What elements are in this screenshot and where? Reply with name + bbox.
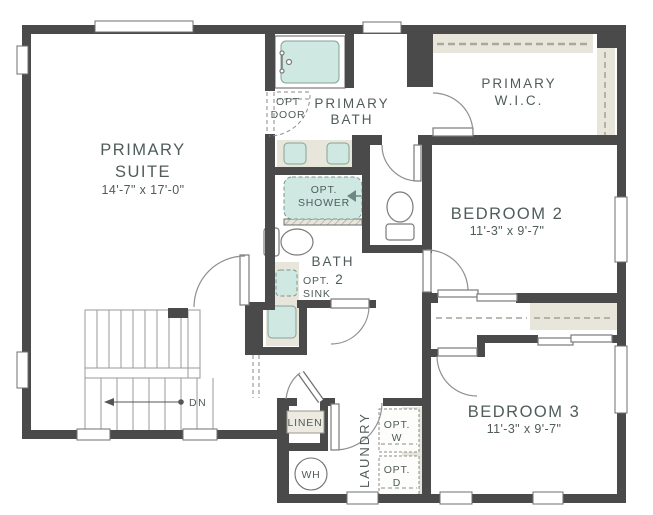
floor-plan: PRIMARY SUITE 14'-7" x 17'-0" PRIMARY BA… [0, 0, 653, 515]
room-label-bedroom3: BEDROOM 3 [468, 403, 581, 421]
room-label-primary-suite: PRIMARY [100, 141, 185, 159]
down-arrow [104, 398, 184, 406]
room-dims-bedroom2: 11'-3" x 9'-7" [470, 224, 545, 238]
window [17, 46, 28, 74]
door-leaf-laundry [331, 404, 339, 450]
opt-sink-icon [276, 270, 297, 296]
wall-vanity-bottom [245, 347, 307, 355]
wall-laundry-top [383, 398, 422, 406]
window [77, 429, 110, 440]
wall-linen-bottom [289, 443, 328, 451]
opt-sink-label: SINK [303, 288, 331, 300]
stairs-down-label: DN [189, 397, 207, 409]
toilet-bowl [387, 192, 413, 222]
wall-vanity-right [299, 300, 307, 355]
opt-washer-label: W [392, 432, 403, 444]
bathtub-spout [287, 60, 292, 65]
opt-shower-label: SHOWER [298, 197, 350, 209]
room-label-bath2: BATH [311, 254, 354, 269]
room-dims-primary-suite: 14'-7" x 17'-0" [102, 183, 185, 197]
opt-washer-label: OPT. [384, 419, 411, 431]
room-label-bedroom2: BEDROOM 2 [451, 205, 564, 223]
doors [194, 93, 612, 450]
window [363, 22, 401, 33]
door-leaf-bath2 [331, 299, 369, 308]
door-arc-wic [433, 93, 473, 133]
wic-right-shelf [597, 48, 615, 138]
wall-wc-left [362, 143, 370, 250]
wall-bed2-bottom-right [516, 293, 626, 303]
door-arc-bedroom3 [437, 356, 477, 396]
wall-closet-bottom-right [612, 335, 626, 343]
room-dims-bedroom3: 11'-3" x 9'-7" [487, 422, 562, 436]
window [533, 492, 563, 504]
wall-bed3-laundry [422, 292, 431, 503]
sink-icon [327, 143, 349, 164]
bathtub-handle-top [280, 51, 284, 55]
door-arc-primary-suite [194, 256, 245, 307]
stair-upper-flight [85, 310, 188, 368]
window [17, 352, 28, 388]
door-leaf-wic [433, 128, 473, 136]
toilet-tank [386, 224, 414, 240]
bypass-door-bed3-closet [571, 335, 612, 342]
wall-bed3-door-right [477, 349, 485, 357]
wall-suite-door [168, 308, 188, 318]
bypass-door-bed2-closet [477, 294, 517, 301]
room-label-primary-wic: PRIMARY [481, 76, 556, 91]
window [615, 346, 627, 413]
door-leaf-wc [414, 145, 421, 181]
window [347, 492, 378, 504]
window [615, 197, 627, 262]
door-arc-linen [286, 373, 300, 399]
stair-landing [85, 368, 200, 378]
room-label-bath2: 2 [335, 272, 345, 287]
water-heater-label: WH [301, 469, 320, 481]
wall-closet-bottom-left [477, 335, 538, 343]
wall-exterior-bottom-left [22, 430, 288, 439]
room-label-primary-suite: SUITE [115, 163, 171, 181]
door-arc-bath2 [331, 306, 369, 344]
opt-sink-label: OPT. [303, 275, 330, 287]
window [183, 429, 217, 440]
sink-icon [268, 306, 296, 338]
door-leaf-bedroom3 [438, 348, 477, 356]
dryer-icon [379, 456, 419, 496]
stair-upper-treads [97, 310, 181, 368]
wall-vanity-left [245, 305, 263, 352]
arrow-origin-dot [178, 399, 184, 405]
wall-bath-divider [275, 167, 362, 175]
arrowhead-icon [104, 398, 114, 406]
room-label-laundry: LAUNDRY [357, 412, 372, 488]
room-label-primary-wic: W.I.C. [495, 93, 544, 108]
opt-door-label: DOOR [271, 109, 306, 121]
wall-suite-bath-lower [265, 134, 275, 304]
wall-wic-pillar [407, 25, 433, 87]
floor-plan-drawing: PRIMARY SUITE 14'-7" x 17'-0" PRIMARY BA… [0, 0, 653, 515]
room-label-primary-bath: BATH [330, 112, 373, 127]
shower-curb [284, 219, 362, 225]
window [95, 21, 193, 32]
opt-dryer-label: OPT. [384, 464, 411, 476]
room-label-linen: LINEN [288, 417, 323, 429]
opt-dryer-label: D [393, 477, 401, 489]
wall-suite-bath-upper [265, 33, 275, 91]
toilet-bowl [281, 229, 313, 255]
opt-shower-label: OPT. [311, 184, 338, 196]
sink-icon [284, 143, 306, 164]
bypass-door-bed2-closet [438, 290, 478, 297]
wall-bed2-left [422, 145, 432, 253]
door-arc-wc [382, 145, 418, 181]
wall-bath-jog [352, 135, 362, 175]
closet-shelf [530, 303, 617, 330]
bypass-door-bed3-closet [538, 338, 573, 345]
toilet-icon [386, 192, 414, 240]
room-label-primary-bath: PRIMARY [314, 96, 389, 111]
wall-wc-bottom [362, 245, 430, 253]
stairs [85, 310, 213, 430]
wall-exterior-right [617, 25, 626, 503]
wall-tub-niche [345, 33, 354, 88]
bathtub-icon [275, 36, 345, 88]
window [440, 492, 472, 504]
wall-linen-top-left [277, 398, 297, 406]
bathtub-handle-bottom [280, 69, 284, 73]
opt-door-label: OPT [276, 96, 300, 108]
door-leaf-linen [301, 373, 321, 401]
door-arc-bedroom2 [427, 250, 468, 291]
door-leaf-primary-suite [240, 255, 249, 305]
door-leaf-bedroom2 [423, 250, 431, 292]
